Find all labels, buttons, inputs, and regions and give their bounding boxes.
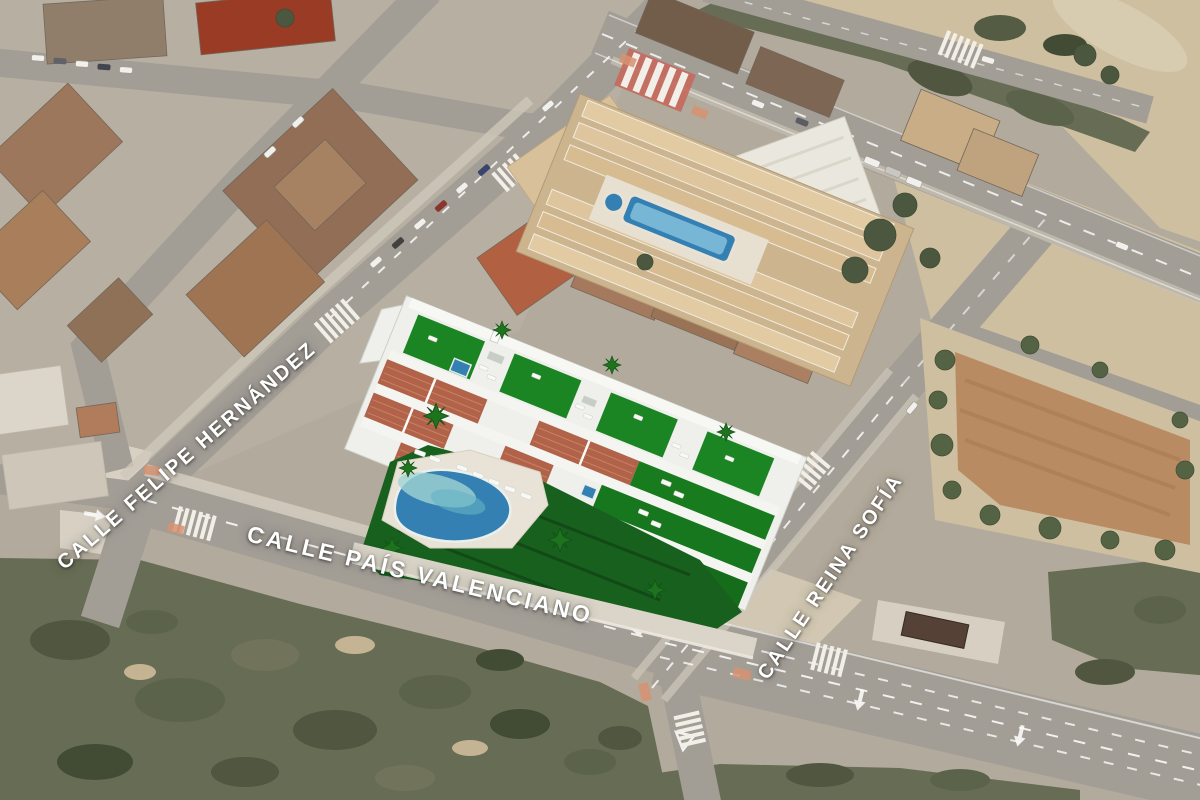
aerial-site-map: CALLE FELIPE HERNÁNDEZ CALLE PAÍS VALENC… (0, 0, 1200, 800)
aerial-photo (0, 0, 1200, 800)
photo-tint-overlay (0, 0, 1200, 800)
